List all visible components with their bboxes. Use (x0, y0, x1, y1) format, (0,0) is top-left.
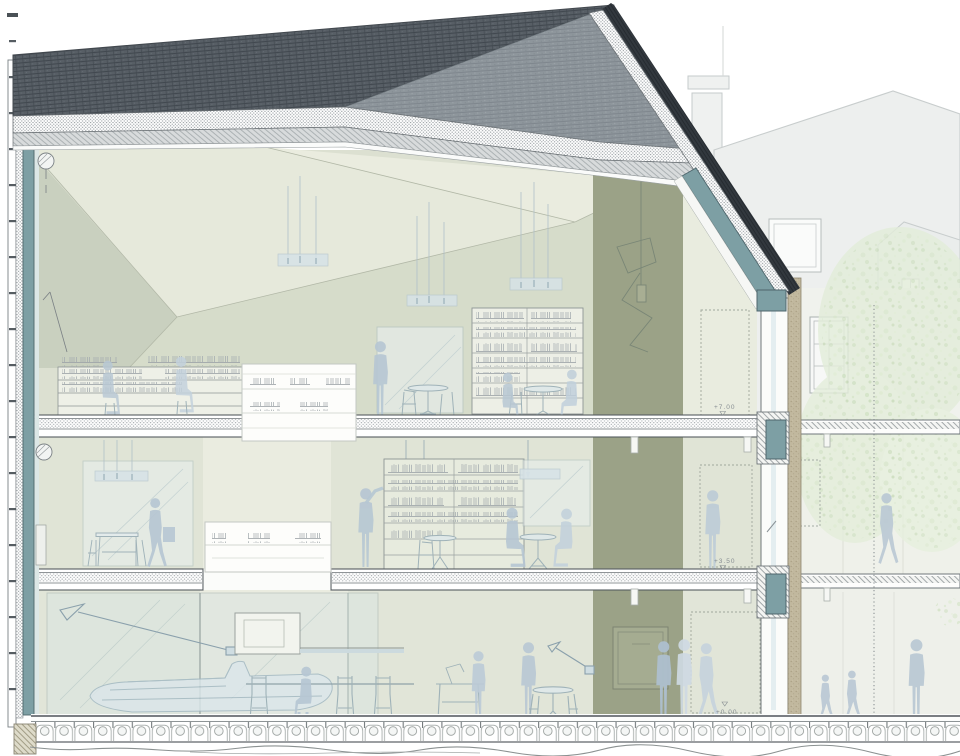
svg-text:+3.50: +3.50 (714, 558, 735, 565)
svg-text:+0.00: +0.00 (716, 709, 737, 716)
svg-text:+7.00: +7.00 (714, 404, 735, 411)
